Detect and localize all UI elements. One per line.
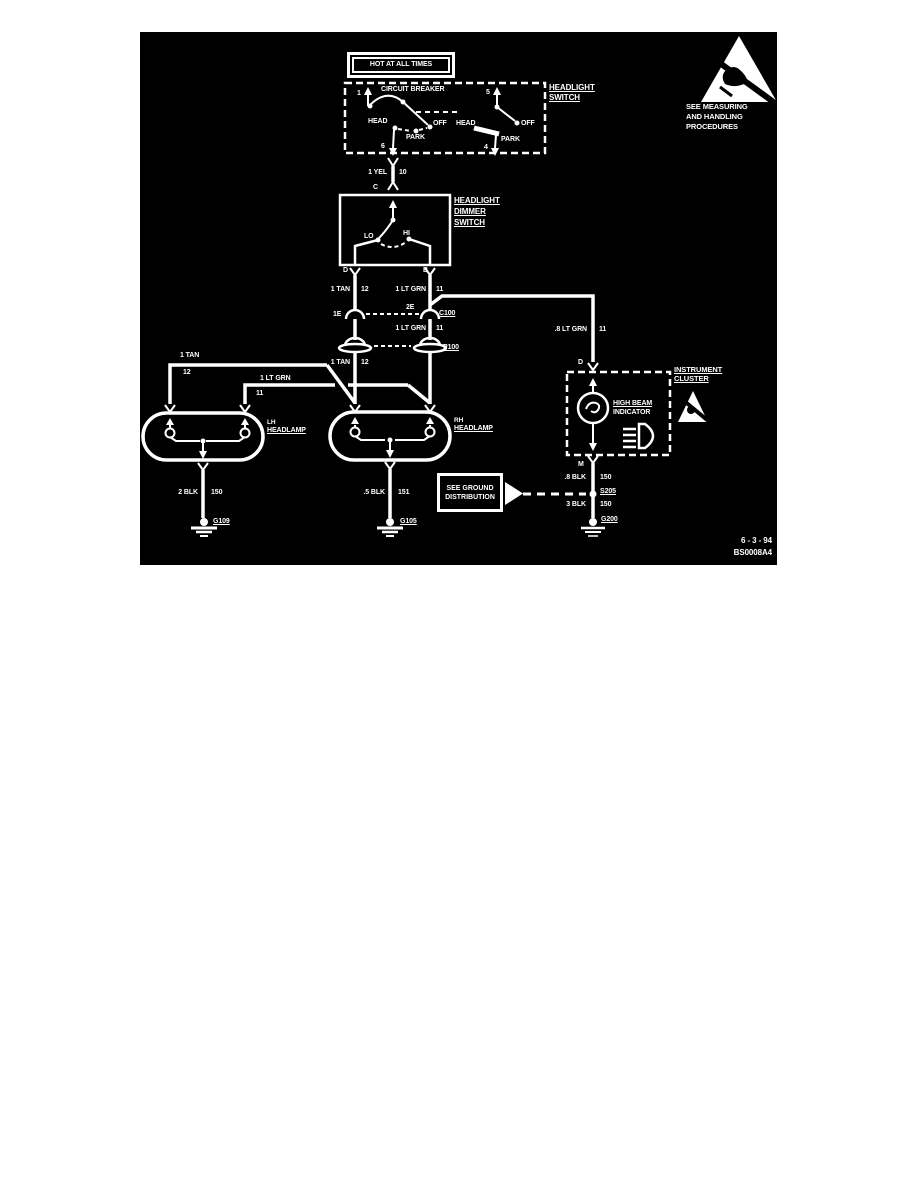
circuit-breaker-label: CIRCUIT BREAKER <box>381 86 444 94</box>
diagram-date: 6 - 3 - 94 <box>741 536 772 546</box>
wire-blk-rh-label: .5 BLK <box>363 489 385 497</box>
dimmer-title-2: DIMMER <box>454 207 486 217</box>
connector-c100-label: C100 <box>439 310 455 318</box>
pin-2e-label: 2E <box>406 304 414 312</box>
dimmer-hi-label: HI <box>403 230 410 238</box>
wire-yel-circuit: 10 <box>399 169 407 177</box>
terminal-c: C <box>373 184 378 192</box>
wire-tan-lh-label: 1 TAN <box>180 352 199 360</box>
hot-at-all-times-box: HOT AT ALL TIMES <box>347 52 455 78</box>
rh-lamp-label-1: RH <box>454 417 463 425</box>
wire-yel-label: 1 YEL <box>368 169 387 177</box>
see-ground-distribution-box: SEE GROUND DISTRIBUTION <box>437 473 503 512</box>
terminal-1: 1 <box>357 90 361 98</box>
dimmer-title-1: HEADLIGHT <box>454 196 500 206</box>
right-off-label: OFF <box>521 120 535 128</box>
right-head-label: HEAD <box>456 120 475 128</box>
wire-tan-mid-label: 1 TAN <box>331 359 350 367</box>
cluster-terminal-m: M <box>578 461 584 469</box>
p100-grommet-icon <box>339 338 446 352</box>
terminal-4: 4 <box>484 144 488 152</box>
wire-tan-lh-circuit: 12 <box>183 369 191 377</box>
wire-grn-cluster-label: .8 LT GRN <box>555 326 587 334</box>
wire-grn-upper-label: 1 LT GRN <box>395 286 426 294</box>
esd-note-line-3: PROCEDURES <box>686 122 738 132</box>
headlight-switch-title-1: HEADLIGHT <box>549 83 595 93</box>
high-beam-label-2: INDICATOR <box>613 409 650 417</box>
wire-grn-cluster-circuit: 11 <box>599 326 606 334</box>
high-beam-label-1: HIGH BEAM <box>613 400 652 408</box>
splice-dot <box>590 491 597 498</box>
cluster-terminal-d: D <box>578 359 583 367</box>
dimmer-lo-label: LO <box>364 233 374 241</box>
left-off-label: OFF <box>433 120 447 128</box>
terminal-b: B <box>423 267 428 275</box>
esd-note-line-1: SEE MEASURING <box>686 102 748 112</box>
wiring-diagram-panel: HOT AT ALL TIMES HEADLIGHT SWITCH CIRCUI… <box>140 32 777 565</box>
wire-grn-lh-label: 1 LT GRN <box>260 375 291 383</box>
headlamp-beam-icon <box>623 424 653 448</box>
left-head-label: HEAD <box>368 118 387 126</box>
right-park-label: PARK <box>501 136 520 144</box>
wire-blk-rh-circuit: 151 <box>398 489 409 497</box>
terminal-6: 6 <box>381 143 385 151</box>
ground-g200-label: G200 <box>601 516 618 524</box>
lh-lamp-label-1: LH <box>267 419 275 427</box>
wire-tan-mid-circuit: 12 <box>361 359 369 367</box>
terminal-d: D <box>343 267 348 275</box>
cluster-title-1: INSTRUMENT <box>674 366 722 374</box>
c100-connector-icon <box>346 310 439 319</box>
arrow-right-icon <box>505 482 523 505</box>
wire-blk-cluster-upper-circuit: 150 <box>600 474 611 482</box>
wire-tan-upper-circuit: 12 <box>361 286 369 294</box>
dimmer-title-3: SWITCH <box>454 218 485 228</box>
wire-blk-lh-label: 2 BLK <box>178 489 198 497</box>
wire-blk-cluster-upper-label: .8 BLK <box>564 474 586 482</box>
wire-blk-lh-circuit: 150 <box>211 489 222 497</box>
esd-note-line-2: AND HANDLING <box>686 112 743 122</box>
left-park-label: PARK <box>406 134 425 142</box>
wire-grn-mid-label: 1 LT GRN <box>395 325 426 333</box>
diagram-ref: BS0008A4 <box>734 548 772 558</box>
cluster-title-2: CLUSTER <box>674 375 709 383</box>
wire-tan-upper-label: 1 TAN <box>331 286 350 294</box>
high-beam-bulb-icon <box>578 393 608 423</box>
terminal-5: 5 <box>486 89 490 97</box>
wire-blk-cluster-lower-circuit: 150 <box>600 501 611 509</box>
esd-warning-small-icon <box>678 391 712 424</box>
page: HOT AT ALL TIMES HEADLIGHT SWITCH CIRCUI… <box>0 0 918 1188</box>
pin-1e-label: 1E <box>333 311 341 319</box>
wire-blk-cluster-lower-label: 3 BLK <box>566 501 586 509</box>
wire-grn-lh-circuit: 11 <box>256 390 263 398</box>
wire-grn-upper-circuit: 11 <box>436 286 443 294</box>
connector-p100-label: P100 <box>443 344 459 352</box>
headlight-switch-title-2: SWITCH <box>549 93 580 103</box>
wire-grn-mid-circuit: 11 <box>436 325 443 333</box>
see-ground-line-1: SEE GROUND <box>446 484 493 493</box>
hot-label: HOT AT ALL TIMES <box>370 61 432 69</box>
splice-s205-label: S205 <box>600 488 616 496</box>
lh-lamp-label-2: HEADLAMP <box>267 427 306 435</box>
see-ground-line-2: DISTRIBUTION <box>445 493 495 502</box>
ground-g105-label: G105 <box>400 518 417 526</box>
rh-lamp-label-2: HEADLAMP <box>454 425 493 433</box>
ground-g109-label: G109 <box>213 518 230 526</box>
